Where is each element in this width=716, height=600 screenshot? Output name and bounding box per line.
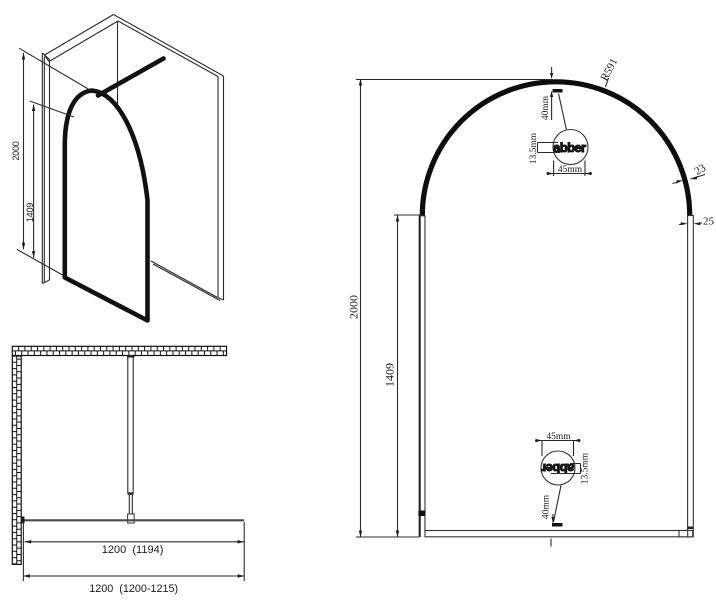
- svg-text:1409: 1409: [383, 363, 397, 387]
- svg-text:2000: 2000: [347, 295, 361, 319]
- svg-text:1409: 1409: [25, 203, 35, 222]
- svg-text:2000: 2000: [11, 141, 21, 160]
- svg-text:25: 25: [703, 216, 715, 228]
- svg-text:45mm: 45mm: [558, 165, 583, 175]
- svg-text:40mm: 40mm: [542, 494, 552, 519]
- svg-text:1200 (1200-1215): 1200 (1200-1215): [89, 583, 178, 595]
- svg-text:13.5mm: 13.5mm: [529, 132, 539, 164]
- svg-text:1200 (1194): 1200 (1194): [102, 544, 164, 556]
- svg-text:40mm: 40mm: [541, 95, 551, 120]
- svg-text:13.5mm: 13.5mm: [581, 452, 591, 484]
- svg-text:45mm: 45mm: [546, 432, 571, 442]
